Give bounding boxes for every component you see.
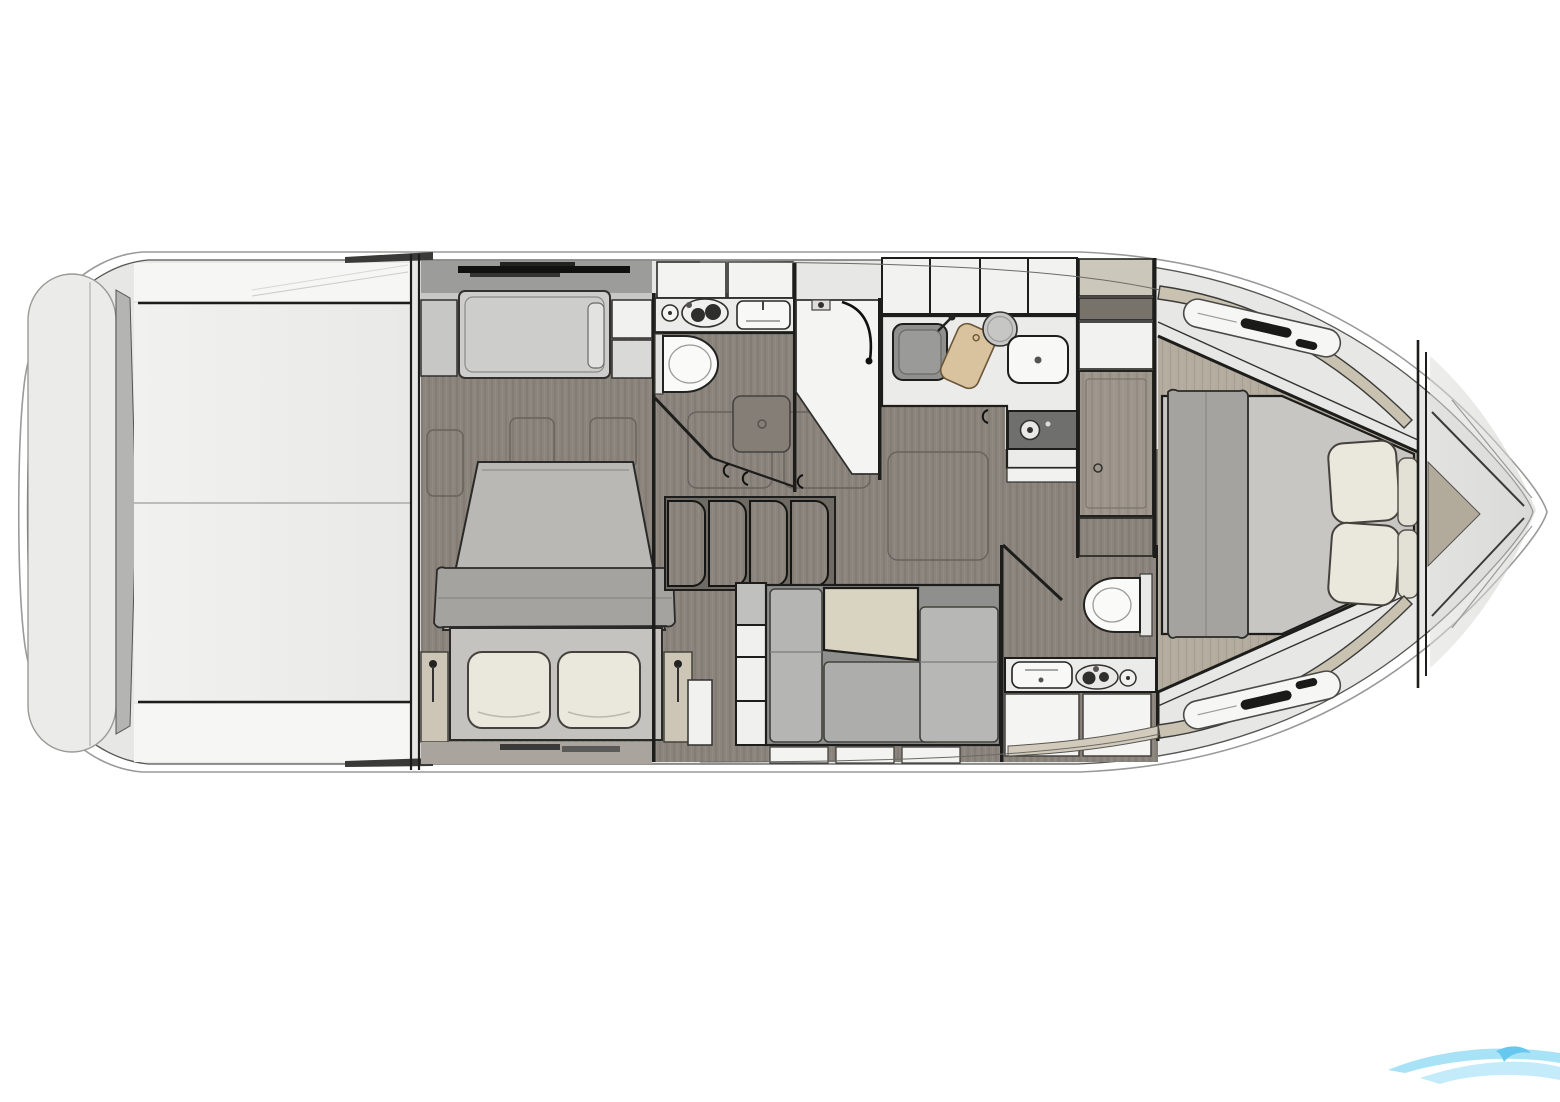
sofa-cushion-right bbox=[920, 607, 998, 742]
sofa-cushion-left bbox=[770, 589, 822, 742]
stair-tread bbox=[791, 501, 828, 586]
wardrobe-cell-wood bbox=[1079, 518, 1153, 556]
tap-knob bbox=[1099, 672, 1109, 682]
cockpit: Cockpit / aft deck, unfurnished bbox=[134, 252, 433, 770]
wave-swoosh-lower bbox=[1420, 1062, 1560, 1084]
cooktop-burner-center bbox=[1027, 427, 1033, 433]
cabin-locker-left bbox=[421, 300, 457, 376]
gauge-dial-dot bbox=[1126, 676, 1130, 680]
wardrobe-cell-white bbox=[1079, 322, 1153, 369]
wardrobe-cell-beige bbox=[1079, 259, 1153, 296]
cockpit-lower-gap bbox=[134, 704, 411, 762]
berth-box bbox=[770, 747, 828, 763]
cooktop-dot bbox=[1046, 422, 1051, 427]
master-back-pillow bbox=[1398, 458, 1418, 526]
stair-tread bbox=[709, 501, 746, 586]
wardrobe-column: Wardrobe / door to forward cabin bbox=[1076, 258, 1157, 558]
bath-overhead-cabinet-2 bbox=[728, 262, 793, 298]
wardrobe-wall-right bbox=[1153, 258, 1157, 558]
cabin-locker-right-bottom bbox=[612, 340, 652, 378]
swim-platform: Swim platform (stern) bbox=[28, 274, 136, 752]
shower-tap-knob bbox=[818, 302, 824, 308]
gauge-dial-dot bbox=[668, 311, 672, 315]
cooktop-burner-icon bbox=[691, 308, 705, 322]
master-pillow bbox=[1327, 522, 1400, 607]
bath-overhead-cabinet-1 bbox=[657, 262, 726, 298]
floor-plan-stage: Motor yacht lower deck floor plan bbox=[0, 0, 1560, 1102]
dinette-table bbox=[824, 588, 918, 660]
walkway-shadow-1 bbox=[500, 744, 560, 750]
shower-head-dot bbox=[866, 358, 873, 365]
shower-floor-tray bbox=[733, 396, 790, 452]
stair-tread bbox=[668, 501, 705, 586]
roof-equipment-bar-3 bbox=[500, 262, 575, 266]
sofa-armrest bbox=[588, 303, 604, 368]
galley-sink-dark-inner bbox=[899, 330, 941, 374]
wardrobe-cell-dark bbox=[1079, 298, 1153, 320]
cabin-locker-right-top bbox=[612, 300, 652, 338]
galley-base-strip bbox=[1007, 468, 1077, 482]
roof-equipment-bar-2 bbox=[470, 273, 560, 277]
walkway-shadow-2 bbox=[562, 746, 620, 752]
master-blanket bbox=[1168, 390, 1248, 638]
tap-knob bbox=[1083, 672, 1096, 685]
stair-tread bbox=[750, 501, 787, 586]
day-head-sink bbox=[1012, 662, 1072, 688]
berth-box bbox=[902, 747, 960, 763]
roof-equipment-bar bbox=[458, 266, 630, 273]
faucet-knob bbox=[949, 314, 956, 321]
yacht-floor-plan: hull Swim platform (stern) Cockpit / aft… bbox=[0, 0, 1560, 1102]
sink-drain-dot bbox=[1035, 357, 1042, 364]
shelf-cell-top bbox=[737, 584, 765, 624]
wave-logo-icon: Light blue wave watermark, bottom right,… bbox=[1388, 1046, 1560, 1084]
toilet-tank bbox=[1140, 574, 1152, 636]
platform-slab bbox=[28, 274, 116, 752]
master-pillow bbox=[1327, 440, 1400, 525]
cockpit-upper-gap bbox=[134, 263, 411, 301]
master-back-pillow bbox=[1398, 530, 1418, 598]
dinette-right-wall bbox=[1000, 545, 1004, 762]
galley-cooktop bbox=[1008, 411, 1077, 449]
cooktop-burner-icon bbox=[705, 304, 721, 320]
sink-drain-dot bbox=[1039, 678, 1044, 683]
dinette-locker-small bbox=[688, 680, 712, 745]
wardrobe-door bbox=[1079, 371, 1153, 516]
wardrobe-wall-left bbox=[1076, 258, 1079, 558]
cooktop-knob bbox=[686, 302, 692, 308]
sofa-berth bbox=[459, 291, 610, 378]
tap-knob-small bbox=[1093, 666, 1099, 672]
toilet-tank bbox=[655, 334, 663, 394]
